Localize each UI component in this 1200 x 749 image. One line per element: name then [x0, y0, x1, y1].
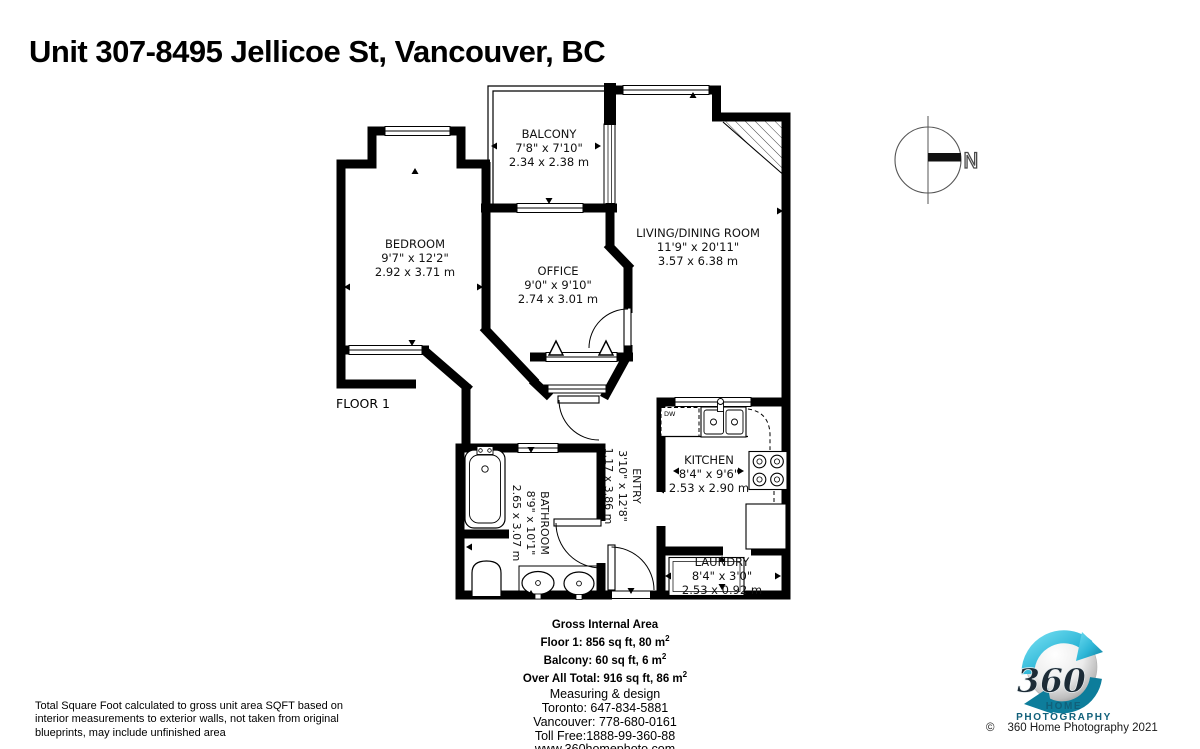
room-dims-metric: 2.53 x 2.90 m: [639, 481, 779, 495]
balcony-bottom-window: [517, 204, 583, 213]
room-label-entry: ENTRY 3'10" x 12'8" 1.17 x 3.86 m: [601, 426, 643, 546]
toilet-icon: [472, 561, 501, 596]
floor-label: FLOOR 1: [336, 396, 390, 411]
area-summary-block: Gross Internal Area Floor 1: 856 sq ft, …: [455, 619, 755, 749]
room-label-kitchen: KITCHEN 8'4" x 9'6" 2.53 x 2.90 m: [639, 453, 779, 495]
bathtub-icon: [465, 447, 505, 529]
bedroom-bottom-window: [349, 346, 422, 355]
website-link[interactable]: www.360homephoto.com: [535, 742, 675, 749]
bedroom-bay-window: [385, 127, 450, 136]
balcony-wall-column: [604, 83, 616, 125]
area-floor1: Floor 1: 856 sq ft, 80 m2: [455, 632, 755, 650]
copyright-text: 360 Home Photography 2021: [1007, 722, 1157, 734]
room-name: ENTRY: [629, 426, 643, 546]
room-dims-imperial: 8'4" x 9'6": [639, 467, 779, 481]
room-dims-metric: 2.65 x 3.07 m: [509, 460, 523, 586]
dishwasher-label: DW: [664, 410, 676, 418]
copyright-icon: ©: [986, 722, 994, 734]
room-dims-imperial: 3'10" x 12'8": [615, 426, 629, 546]
room-label-balcony: BALCONY 7'8" x 7'10" 2.34 x 2.38 m: [479, 127, 619, 169]
area-summary-title: Gross Internal Area: [455, 619, 755, 632]
logo-360-text: 360: [1017, 661, 1086, 700]
contact-vancouver: Vancouver: 778-680-0161: [455, 716, 755, 730]
room-dims-metric: 2.53 x 0.92 m: [652, 583, 792, 597]
front-door: [608, 545, 654, 590]
room-label-bedroom: BEDROOM 9'7" x 12'2" 2.92 x 3.71 m: [345, 237, 485, 279]
living-top-window: [623, 86, 709, 95]
room-dims-imperial: 9'7" x 12'2": [345, 251, 485, 265]
compass-north-label: N: [963, 149, 979, 173]
office-door: [589, 308, 631, 348]
room-dims-imperial: 8'4" x 3'0": [652, 569, 792, 583]
room-name: LAUNDRY: [652, 555, 792, 569]
hallway-door: [558, 396, 599, 440]
room-dims-metric: 1.17 x 3.86 m: [601, 426, 615, 546]
logo-brand-text: HOME PHOTOGRAPHY: [998, 701, 1130, 723]
area-balcony: Balcony: 60 sq ft, 6 m2: [455, 650, 755, 668]
room-dims-imperial: 7'8" x 7'10": [479, 141, 619, 155]
room-label-living-dining: LIVING/DINING ROOM 11'9" x 20'11" 3.57 x…: [608, 226, 788, 268]
room-dims-imperial: 9'0" x 9'10": [488, 278, 628, 292]
room-dims-metric: 3.57 x 6.38 m: [608, 254, 788, 268]
floorplan-page: Unit 307-8495 Jellicoe St, Vancouver, BC: [0, 0, 1200, 749]
disclaimer-text: Total Square Foot calculated to gross un…: [35, 700, 355, 740]
room-label-laundry: LAUNDRY 8'4" x 3'0" 2.53 x 0.92 m: [652, 555, 792, 597]
room-dims-metric: 2.34 x 2.38 m: [479, 155, 619, 169]
kitchen-pass-window: [675, 398, 751, 407]
bathroom-door: [554, 519, 601, 568]
bathroom-pocket-door: [518, 444, 558, 453]
contact-tollfree: Toll Free:1888-99-360-88: [455, 730, 755, 744]
room-label-bathroom: BATHROOM 8'9" x 10'1" 2.65 x 3.07 m: [509, 460, 551, 586]
copyright-line: ©360 Home Photography 2021: [986, 722, 1158, 734]
contact-toronto: Toronto: 647-834-5881: [455, 702, 755, 716]
office-bay-window: [548, 385, 606, 393]
room-name: BALCONY: [479, 127, 619, 141]
room-dims-metric: 2.92 x 3.71 m: [345, 265, 485, 279]
area-total: Over All Total: 916 sq ft, 86 m2: [455, 668, 755, 686]
room-name: OFFICE: [488, 264, 628, 278]
room-dims-metric: 2.74 x 3.01 m: [488, 292, 628, 306]
room-name: LIVING/DINING ROOM: [608, 226, 788, 240]
room-label-office: OFFICE 9'0" x 9'10" 2.74 x 3.01 m: [488, 264, 628, 306]
contact-measuring: Measuring & design: [455, 688, 755, 702]
compass: N: [895, 116, 979, 204]
hatched-corner: [722, 122, 786, 179]
room-name: KITCHEN: [639, 453, 779, 467]
kitchen-counter-block: [746, 504, 786, 549]
room-name: BEDROOM: [345, 237, 485, 251]
room-dims-imperial: 8'9" x 10'1": [523, 460, 537, 586]
room-dims-imperial: 11'9" x 20'11": [608, 240, 788, 254]
room-name: BATHROOM: [537, 460, 551, 586]
